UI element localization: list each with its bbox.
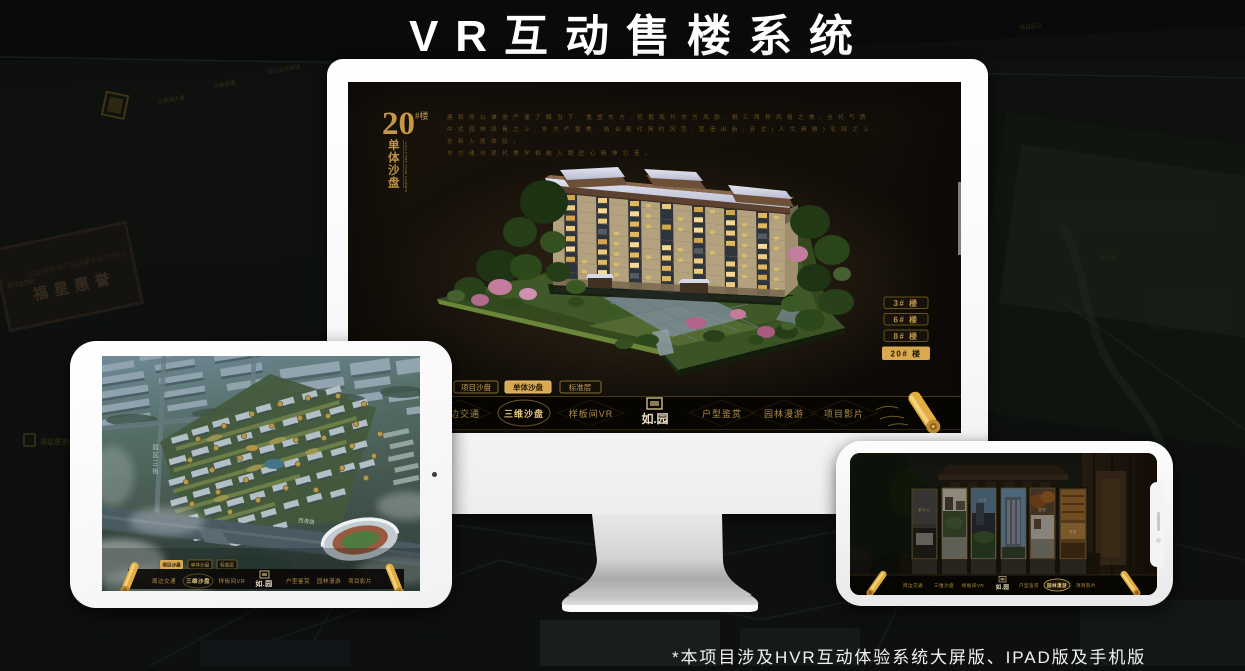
svg-text:园林漫游: 园林漫游 xyxy=(1047,582,1067,589)
svg-text:建筑师以谦逊严谨了解当下·重塑东方,挖掘现代东方风韵,融汇两: 建筑师以谦逊严谨了解当下·重塑东方,挖掘现代东方风韵,融汇两种风格之美,当代气质 xyxy=(447,113,871,121)
svg-text:标准层: 标准层 xyxy=(220,562,234,569)
svg-text:样板间VR: 样板间VR xyxy=(962,582,984,589)
svg-text:6# 楼: 6# 楼 xyxy=(893,315,918,325)
svg-text:3# 楼: 3# 楼 xyxy=(893,298,918,308)
svg-text:#楼: #楼 xyxy=(415,110,429,121)
svg-text:周边交通: 周边交通 xyxy=(152,577,176,585)
svg-text:项目沙盘: 项目沙盘 xyxy=(461,382,491,392)
svg-text:中式园林风骨之上,东方严整美,结合现代简约风范,营造出新,苏: 中式园林风骨之上,东方严整美,结合现代简约风范,营造出新,苏式(人文典雅)宅院之… xyxy=(447,125,881,133)
svg-text:单体沙盘: 单体沙盘 xyxy=(191,562,210,569)
svg-text:8# 楼: 8# 楼 xyxy=(893,331,918,341)
svg-text:VILLA THE SAND GARDEN: VILLA THE SAND GARDEN xyxy=(404,142,408,193)
svg-text:体: 体 xyxy=(388,151,400,165)
svg-text:项目影片: 项目影片 xyxy=(824,408,864,419)
svg-text:标准层: 标准层 xyxy=(569,382,592,392)
svg-text:如.园: 如.园 xyxy=(641,411,668,426)
svg-text:样板间VR: 样板间VR xyxy=(219,577,246,585)
svg-text:20: 20 xyxy=(382,106,415,142)
svg-text:项目影片: 项目影片 xyxy=(1076,582,1096,589)
svg-text:户型鉴赏: 户型鉴赏 xyxy=(702,408,742,419)
svg-text:样板间VR: 样板间VR xyxy=(569,408,614,419)
svg-text:沙: 沙 xyxy=(388,164,400,177)
svg-text:盘: 盘 xyxy=(388,176,400,190)
svg-text:东方魂与现代美学相融入籍匠心精神打造。: 东方魂与现代美学相融入籍匠心精神打造。 xyxy=(447,149,656,157)
svg-text:户型鉴赏: 户型鉴赏 xyxy=(1019,582,1039,589)
svg-text:花山河: 花山河 xyxy=(1100,254,1117,262)
svg-text:三维沙盘: 三维沙盘 xyxy=(934,582,954,589)
svg-text:如.园: 如.园 xyxy=(996,583,1010,591)
svg-text:项目沙盘: 项目沙盘 xyxy=(162,562,181,569)
svg-text:单体沙盘: 单体沙盘 xyxy=(513,382,543,392)
svg-text:周边交通: 周边交通 xyxy=(903,582,923,589)
svg-text:单: 单 xyxy=(388,138,400,152)
svg-text:园林漫游: 园林漫游 xyxy=(317,577,341,585)
svg-text:户型鉴赏: 户型鉴赏 xyxy=(286,577,310,585)
svg-text:如.园: 如.园 xyxy=(255,579,272,588)
svg-text:园林漫游: 园林漫游 xyxy=(764,408,804,419)
svg-text:全新人居体验。: 全新人居体验。 xyxy=(447,137,524,145)
svg-text:20# 楼: 20# 楼 xyxy=(890,349,921,359)
svg-text:园区三街: 园区三街 xyxy=(151,444,158,476)
svg-text:三维沙盘: 三维沙盘 xyxy=(186,577,210,585)
svg-text:三维沙盘: 三维沙盘 xyxy=(504,408,544,419)
svg-text:项目影片: 项目影片 xyxy=(348,577,372,585)
